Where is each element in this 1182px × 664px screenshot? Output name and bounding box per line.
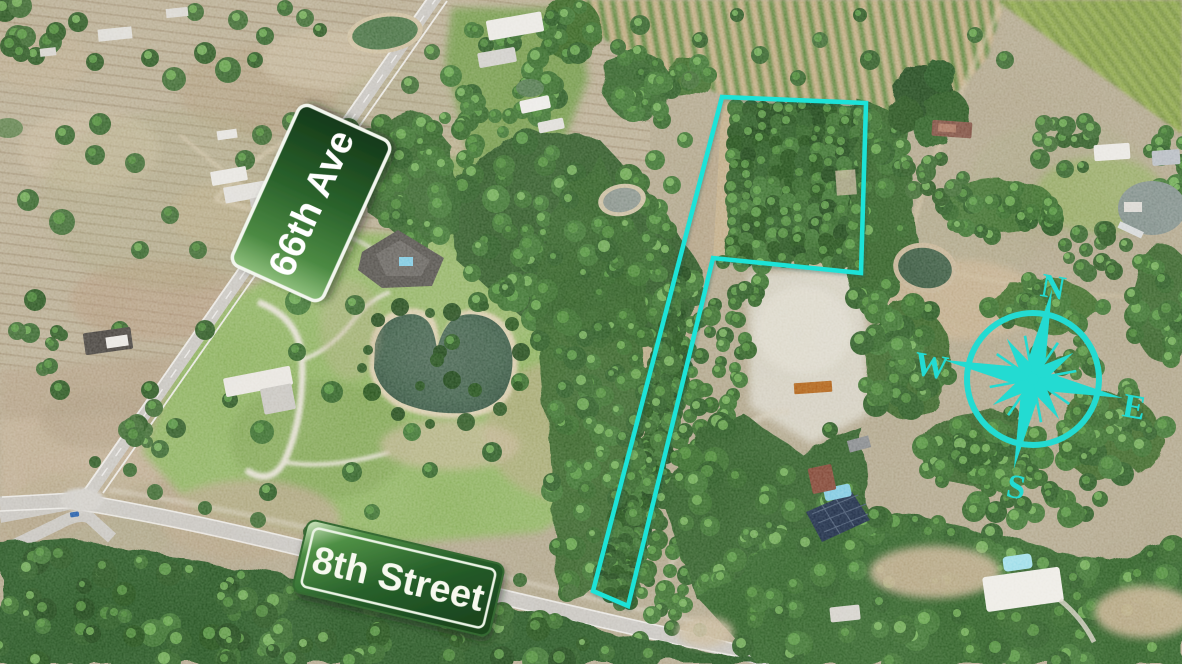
svg-text:W: W xyxy=(911,345,951,387)
